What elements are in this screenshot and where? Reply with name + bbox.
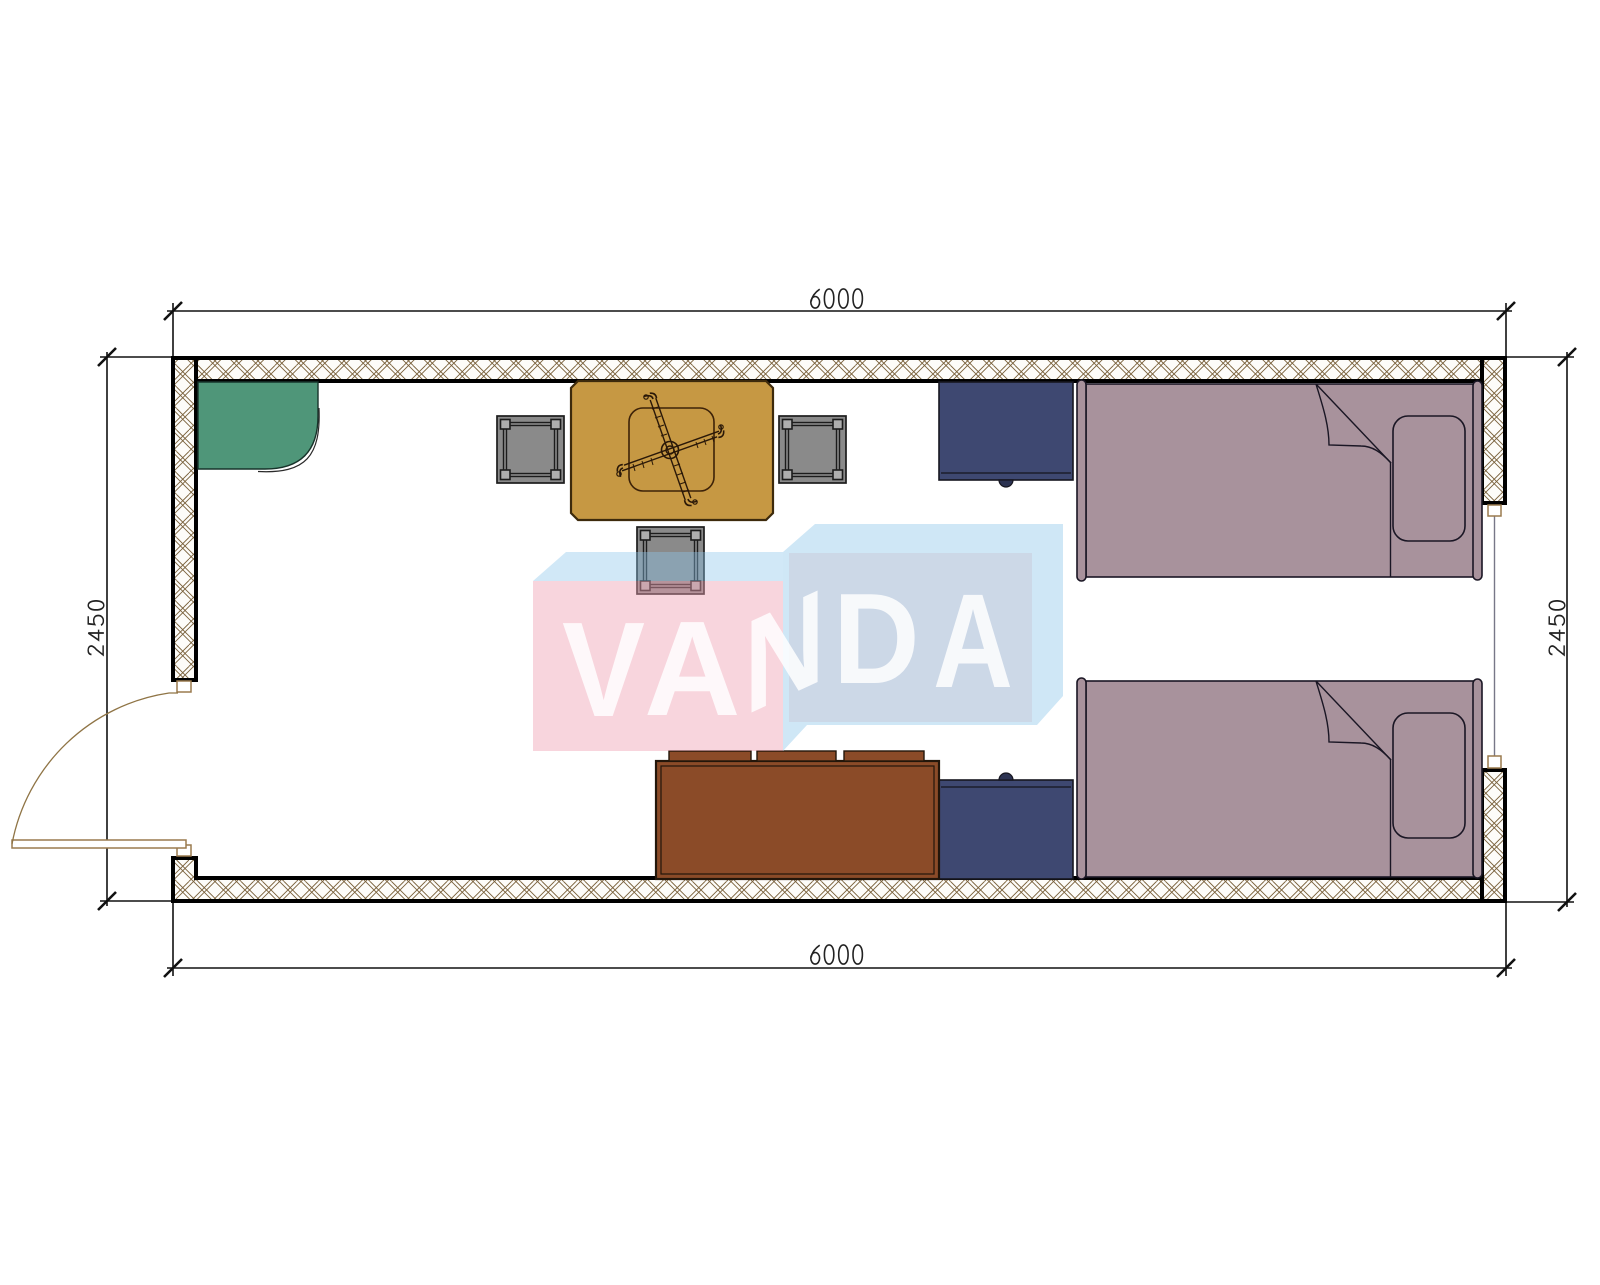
svg-text:V: V bbox=[562, 593, 645, 745]
svg-text:A: A bbox=[933, 567, 1013, 716]
svg-text:D: D bbox=[833, 567, 920, 711]
svg-text:A: A bbox=[644, 593, 741, 744]
